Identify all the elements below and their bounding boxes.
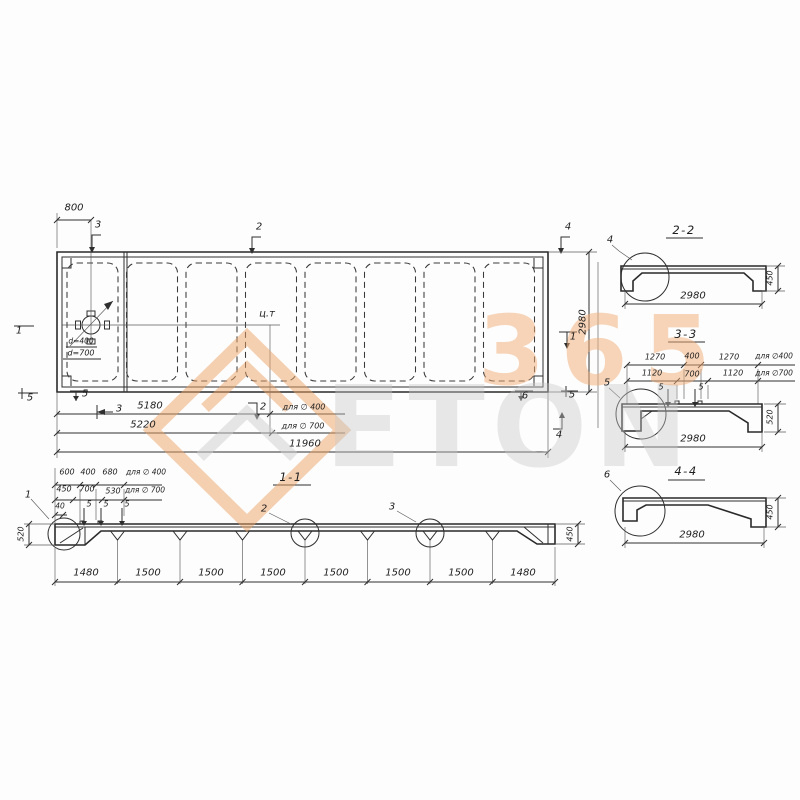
loop-mark-5-a: 5	[658, 383, 663, 392]
dim-11960: 11960	[289, 439, 321, 450]
dim-2980-plan-height: 2980	[578, 309, 589, 334]
dim-2980-s44: 2980	[679, 530, 704, 541]
dim-bottom-3: 1500	[260, 568, 285, 579]
detail-label-4: 4	[607, 235, 613, 246]
dim-600: 600	[59, 468, 74, 477]
dim-bottom-0: 1480	[73, 568, 98, 579]
note-d700-s11: для ∅ 700	[125, 486, 165, 495]
dim-530: 530	[105, 487, 120, 496]
dim-520-s33: 520	[766, 409, 775, 424]
section-marker-5-bottom: 5	[82, 389, 88, 400]
dim-bottom-6: 1500	[448, 568, 473, 579]
hole-d400-label: d=400	[68, 337, 93, 346]
section-marker-1-right: 1	[570, 332, 576, 343]
dim-680: 680	[102, 468, 117, 477]
dim-800: 800	[64, 203, 83, 214]
section-marker-3-top: 3	[95, 220, 101, 231]
dim-bottom-4: 1500	[323, 568, 348, 579]
dim-2980-s33: 2980	[680, 434, 705, 445]
dim-1120-b: 1120	[723, 369, 743, 378]
detail-label-6: 6	[604, 470, 610, 481]
section-3-3-title: 3-3	[674, 327, 697, 341]
section-marker-2-top: 2	[256, 222, 262, 233]
note-d700-s33: для ∅700	[755, 369, 793, 378]
dim-700-s33: 700	[684, 370, 699, 379]
section-1-1-title: 1-1	[279, 470, 302, 484]
section-marker-6-bottom: 6	[522, 391, 528, 402]
section-marker-1-left: 1	[16, 326, 22, 337]
section-marker-4-top: 4	[565, 222, 571, 233]
detail-label-2: 2	[261, 504, 267, 515]
dim-400-s11: 400	[80, 468, 95, 477]
section-marker-3-bottom: 3	[116, 404, 122, 415]
detail-label-1: 1	[25, 490, 31, 501]
section-2-2-title: 2-2	[672, 223, 695, 237]
section-4-4-title: 4-4	[674, 464, 697, 478]
dim-2980-s22: 2980	[680, 291, 705, 302]
loop-mark-5-b: 5	[698, 383, 703, 392]
dim-bottom-1: 1500	[135, 568, 160, 579]
hole-d700-label: d=700	[67, 349, 94, 358]
dim-1120-a: 1120	[642, 369, 662, 378]
note-d700: для ∅ 700	[282, 422, 325, 431]
detail-circle-4	[621, 253, 669, 301]
dim-700-s11: 700	[79, 485, 94, 494]
note-d400-s33: для ∅400	[755, 352, 793, 361]
dim-450-s44: 450	[766, 504, 775, 519]
technical-drawing-canvas: ETON 365 800 3 2 4 ц.т d=400 d=700 1 5 5…	[0, 0, 800, 800]
dim-1270-a: 1270	[645, 353, 665, 362]
note-d400-s11: для ∅ 400	[126, 468, 166, 477]
note-d400: для ∅ 400	[283, 403, 326, 412]
dim-bottom-7: 1480	[510, 568, 535, 579]
dim-520-left: 520	[17, 526, 26, 541]
dim-bottom-2: 1500	[198, 568, 223, 579]
dim-450-right: 450	[566, 526, 575, 541]
dim-40: 40	[55, 502, 65, 511]
section-marker-5-right: 5	[569, 390, 575, 401]
dim-450-top: 450	[56, 485, 71, 494]
section-marker-2-bottom: 2	[260, 402, 266, 413]
detail-label-5: 5	[604, 378, 610, 389]
detail-label-3: 3	[389, 502, 395, 513]
dim-5220: 5220	[130, 420, 155, 431]
center-of-gravity-label: ц.т	[259, 309, 275, 320]
dim-bottom-5: 1500	[385, 568, 410, 579]
loop-mark-5-3: 5	[124, 500, 129, 509]
section-marker-4-bottom: 4	[556, 430, 562, 441]
dim-5180: 5180	[137, 401, 162, 412]
loop-mark-5-2: 5	[103, 500, 108, 509]
dim-400-s33: 400	[684, 352, 699, 361]
dim-1270-b: 1270	[719, 353, 739, 362]
dim-450-s22: 450	[766, 270, 775, 285]
section-marker-5-left: 5	[27, 393, 33, 404]
loop-mark-5-1: 5	[86, 500, 91, 509]
